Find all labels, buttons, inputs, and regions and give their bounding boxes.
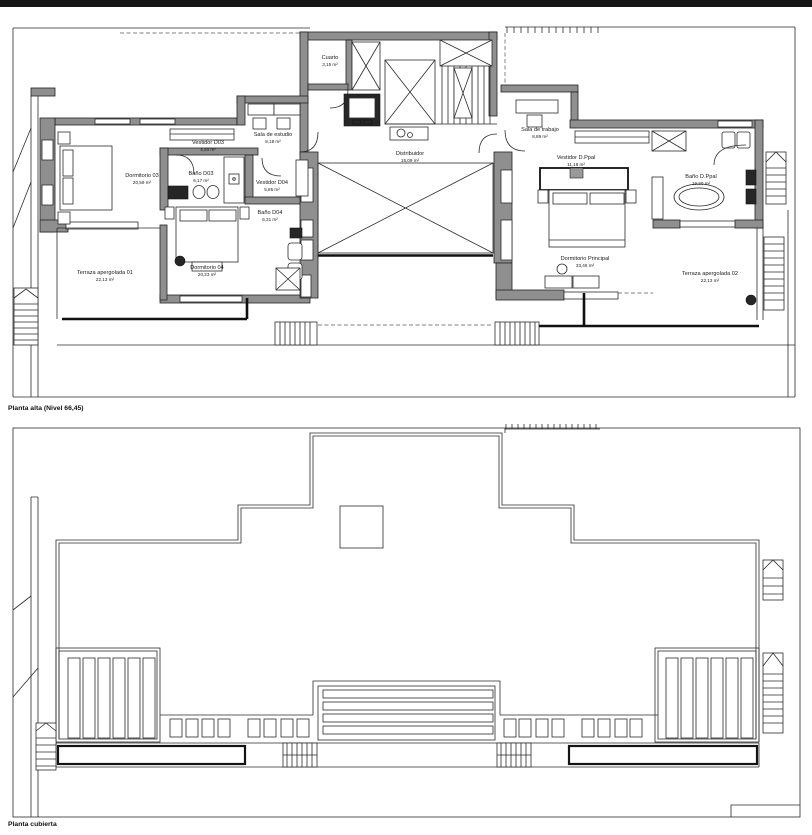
upper-floor-plan: Cuarto 3,15 m² Distribuidor 15,09 m² Sal… — [0, 0, 812, 412]
roof-skylight — [340, 506, 383, 548]
svg-text:Terraza apergolada 01: Terraza apergolada 01 — [77, 270, 133, 276]
label-terraza-01: Terraza apergolada 01 22,13 m² — [77, 270, 133, 282]
svg-text:8,18 m²: 8,18 m² — [265, 139, 281, 144]
wardrobe-vestidor-d03 — [170, 129, 234, 140]
terrace-edge-band — [275, 322, 539, 345]
roof-beam-squares-left — [170, 719, 309, 737]
terrace-02 — [506, 228, 763, 326]
svg-text:22,13 m²: 22,13 m² — [701, 278, 720, 283]
label-bano-d03: Baño D03 6,17 m² — [189, 171, 214, 183]
floor-plan-canvas: Cuarto 3,15 m² Distribuidor 15,09 m² Sal… — [0, 0, 812, 835]
roof-pergola-right — [655, 648, 759, 742]
svg-text:Baño D03: Baño D03 — [189, 171, 214, 177]
plan-title-roof: Planta cubierta — [8, 821, 57, 828]
svg-text:20,59 m²: 20,59 m² — [133, 180, 152, 185]
svg-text:Sala de trabajo: Sala de trabajo — [521, 127, 559, 133]
label-terraza-02: Terraza apergolada 02 22,13 m² — [682, 271, 738, 283]
stairwell — [385, 40, 497, 124]
roof-right-edge-stairs — [763, 560, 783, 733]
svg-text:Vestidor D04: Vestidor D04 — [256, 180, 288, 186]
label-bano-d04: Baño D04 6,31 m² — [258, 210, 283, 222]
svg-text:11,18 m²: 11,18 m² — [567, 162, 585, 167]
label-bano-ppal: Baño D.Ppal 19,20 m² — [685, 174, 716, 186]
top-black-bar — [0, 0, 812, 7]
svg-text:Vestidor D.Ppal: Vestidor D.Ppal — [557, 155, 596, 161]
svg-text:Baño D04: Baño D04 — [258, 210, 283, 216]
svg-text:Terraza apergolada 02: Terraza apergolada 02 — [682, 271, 738, 277]
bed-principal — [538, 190, 636, 288]
roof-stair-hatch-left — [283, 743, 317, 767]
label-dormitorio-principal: Dormitorio Principal 33,46 m² — [561, 256, 610, 268]
left-exterior-stair — [14, 288, 38, 345]
svg-text:3,15 m²: 3,15 m² — [322, 62, 338, 67]
plan-title-upper: Planta alta (Nivel 66,45) — [8, 405, 84, 412]
roof-lower-band — [56, 743, 759, 767]
svg-text:Vestidor D03: Vestidor D03 — [192, 140, 224, 146]
svg-text:8,89 m²: 8,89 m² — [532, 134, 548, 139]
label-cuarto: Cuarto 3,15 m² — [322, 55, 339, 67]
svg-text:Dormitorio Principal: Dormitorio Principal — [561, 256, 610, 262]
svg-text:6,31 m²: 6,31 m² — [262, 217, 278, 222]
svg-text:6,17 m²: 6,17 m² — [193, 178, 209, 183]
roof-center-louvers — [313, 681, 500, 740]
svg-text:15,09 m²: 15,09 m² — [401, 158, 420, 163]
roof-pergola-left — [56, 648, 160, 742]
roof-left-edge-stair — [36, 723, 56, 770]
svg-text:20,23 m²: 20,23 m² — [198, 272, 217, 277]
label-vestidor-ppal: Vestidor D.Ppal 11,18 m² — [557, 155, 596, 167]
roof-plan: Planta cubierta — [8, 424, 800, 828]
roof-stair-hatch-right — [497, 743, 531, 767]
label-vestidor-d04: Vestidor D04 5,85 m² — [256, 180, 288, 192]
svg-text:Baño D.Ppal: Baño D.Ppal — [685, 174, 716, 180]
label-distribuidor: Distribuidor 15,09 m² — [396, 151, 424, 163]
drawing-sheet: Cuarto 3,15 m² Distribuidor 15,09 m² Sal… — [0, 0, 812, 835]
bath-d04-fixtures — [276, 228, 302, 290]
svg-text:Distribuidor: Distribuidor — [396, 151, 424, 157]
svg-text:Sala de estudio: Sala de estudio — [254, 132, 293, 138]
bed-dormitorio-03 — [58, 132, 112, 224]
double-height-void — [318, 163, 493, 256]
svg-text:5,85 m²: 5,85 m² — [264, 187, 280, 192]
wc-closet-symbol — [390, 127, 428, 140]
svg-text:4,20 m²: 4,20 m² — [200, 147, 216, 152]
svg-text:22,13 m²: 22,13 m² — [96, 277, 115, 282]
work-room-furniture — [505, 100, 558, 151]
study-furniture — [248, 104, 300, 129]
svg-text:Dormitorio 04: Dormitorio 04 — [190, 265, 224, 271]
label-dormitorio-03: Dormitorio 03 20,59 m² — [125, 173, 159, 185]
label-sala-trabajo: Sala de trabajo 8,89 m² — [521, 127, 559, 139]
svg-text:19,20 m²: 19,20 m² — [692, 181, 711, 186]
corridor-end-wall — [31, 88, 55, 96]
roof-beam-squares-right — [504, 719, 642, 737]
svg-text:Dormitorio 03: Dormitorio 03 — [125, 173, 159, 179]
svg-text:Cuarto: Cuarto — [322, 55, 339, 61]
right-exterior-stairs — [764, 152, 786, 310]
svg-text:33,46 m²: 33,46 m² — [576, 263, 595, 268]
label-sala-estudio: Sala de estudio 8,18 m² — [254, 132, 293, 144]
